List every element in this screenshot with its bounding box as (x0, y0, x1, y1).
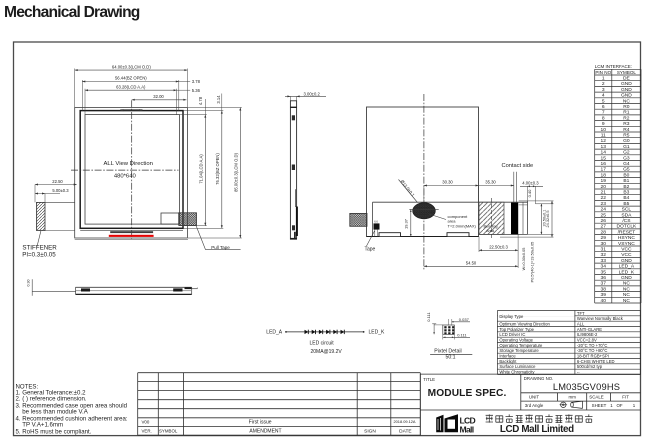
svg-text:36: 36 (601, 275, 607, 281)
svg-text:35.30: 35.30 (485, 180, 496, 185)
svg-text:W=0.30±0.05: W=0.30±0.05 (522, 248, 526, 271)
svg-text:30.30: 30.30 (442, 180, 453, 185)
svg-text:DATE: DATE (399, 428, 411, 434)
svg-text:32.00: 32.00 (153, 94, 164, 99)
svg-text:Ø13.0±0.1: Ø13.0±0.1 (400, 179, 416, 198)
svg-text:71.04(LCD A.A): 71.04(LCD A.A) (199, 154, 204, 184)
svg-text:PIN NO: PIN NO (595, 70, 611, 75)
svg-text:VER.: VER. (142, 428, 152, 433)
svg-text:ANTI-GLARE: ANTI-GLARE (577, 327, 602, 332)
svg-text:6: 6 (602, 104, 605, 110)
svg-text:Storage Temperature: Storage Temperature (499, 348, 539, 353)
svg-text:R0: R0 (623, 104, 630, 110)
svg-text:22.50±0.3: 22.50±0.3 (489, 245, 508, 250)
svg-text:SYMBOL: SYMBOL (159, 428, 178, 433)
svg-text:Optimum Viewing Direction: Optimum Viewing Direction (499, 322, 550, 327)
svg-text:1: 1 (602, 76, 605, 82)
svg-text:40: 40 (601, 298, 607, 304)
svg-text:27: 27 (601, 224, 607, 230)
svg-text:480*640: 480*640 (114, 174, 137, 180)
svg-text:12: 12 (601, 138, 607, 144)
svg-text:4.00±0.3: 4.00±0.3 (522, 181, 539, 186)
svg-text:39: 39 (601, 292, 607, 298)
svg-text:64.00±0.3(LCM O.D): 64.00±0.3(LCM O.D) (112, 64, 151, 69)
svg-text:VSYNC: VSYNC (618, 241, 635, 247)
svg-text:63.28(LCD A.A): 63.28(LCD A.A) (116, 84, 146, 89)
svg-text:VCC: VCC (621, 247, 632, 253)
svg-text:SDA: SDA (621, 212, 632, 218)
svg-text:20: 20 (601, 184, 607, 190)
svg-text:3.00±0.2: 3.00±0.2 (304, 91, 321, 96)
svg-text:1: 1 (633, 403, 636, 408)
svg-text:SCL: SCL (622, 207, 632, 213)
svg-text:Wanview Normally Black: Wanview Normally Black (577, 316, 624, 321)
svg-text:FIT: FIT (622, 395, 629, 400)
svg-text:Pixtel Detail: Pixtel Detail (434, 348, 461, 354)
svg-text:/CS: /CS (622, 218, 631, 224)
svg-text:G2: G2 (623, 150, 630, 156)
svg-text:21: 21 (601, 190, 607, 196)
svg-text:22.50: 22.50 (52, 179, 63, 184)
svg-text:B4: B4 (623, 195, 629, 201)
svg-text:ILI9806E-2: ILI9806E-2 (577, 332, 598, 337)
svg-text:9: 9 (602, 121, 605, 127)
svg-text:DE: DE (623, 76, 631, 82)
svg-text:37: 37 (601, 281, 607, 287)
svg-text:32: 32 (601, 252, 607, 258)
svg-text:500cd/m2 typ: 500cd/m2 typ (577, 364, 603, 369)
svg-text:B1: B1 (623, 178, 629, 184)
svg-text:29: 29 (601, 235, 607, 241)
svg-text:LED_K: LED_K (369, 330, 386, 336)
svg-text:G5: G5 (623, 167, 630, 173)
svg-text:mm: mm (569, 395, 577, 400)
svg-text:33: 33 (601, 258, 607, 264)
svg-text:B0: B0 (623, 172, 629, 178)
svg-text:AMENDMENT: AMENDMENT (249, 428, 281, 434)
svg-text:Tape: Tape (365, 246, 376, 252)
svg-text:G0: G0 (623, 138, 630, 144)
svg-text:19: 19 (601, 178, 607, 184)
svg-text:28: 28 (601, 229, 607, 235)
svg-text:0.111: 0.111 (457, 333, 467, 338)
svg-text:25: 25 (601, 212, 607, 218)
svg-text:R1: R1 (623, 110, 630, 116)
svg-text:85.00±0.3(LCM O.D): 85.00±0.3(LCM O.D) (234, 152, 239, 191)
svg-text:11: 11 (601, 133, 606, 139)
svg-text:Backlight: Backlight (499, 359, 517, 364)
svg-text:SHEET: SHEET (592, 403, 607, 408)
svg-text:R4: R4 (623, 127, 630, 133)
svg-text:19.37: 19.37 (403, 218, 408, 229)
svg-text:0.037: 0.037 (459, 317, 470, 322)
svg-text:14: 14 (601, 150, 607, 156)
svg-text:15: 15 (601, 155, 607, 161)
svg-text:22: 22 (601, 195, 607, 201)
svg-text:SYMBOL: SYMBOL (617, 70, 637, 75)
svg-text:0.40: 0.40 (527, 189, 532, 198)
svg-text:TITLE: TITLE (423, 377, 435, 382)
svg-text:Area: Area (486, 229, 495, 233)
svg-text:LED_A: LED_A (619, 264, 635, 270)
svg-text:LCD Mall Limited: LCD Mall Limited (500, 424, 574, 435)
svg-text:B5: B5 (623, 201, 629, 207)
svg-text:MODULE SPEC.: MODULE SPEC. (428, 388, 507, 399)
svg-text:Interface: Interface (499, 354, 516, 359)
svg-text:G3: G3 (623, 155, 630, 161)
svg-text:18: 18 (601, 172, 607, 178)
svg-text:20MA@19.2V: 20MA@19.2V (311, 349, 343, 355)
svg-text:ALL: ALL (577, 322, 585, 327)
svg-text:NC: NC (623, 286, 631, 292)
svg-text:56.44(BZ OPEN): 56.44(BZ OPEN) (115, 76, 147, 81)
svg-text:Contact side: Contact side (502, 163, 534, 169)
svg-text:NC: NC (623, 292, 631, 298)
svg-text:ALL View Direction: ALL View Direction (103, 161, 152, 167)
svg-text:/RESET: /RESET (618, 229, 636, 235)
svg-text:4: 4 (602, 93, 605, 99)
svg-text:HSYNC: HSYNC (618, 235, 636, 241)
svg-text:Display Type: Display Type (499, 314, 524, 319)
svg-text:R5: R5 (623, 133, 630, 139)
svg-text:3rd Angle: 3rd Angle (525, 403, 544, 408)
svg-text:5. RoHS must be compliant.: 5. RoHS must be compliant. (16, 428, 92, 435)
svg-text:23: 23 (601, 201, 607, 207)
svg-text:26: 26 (601, 218, 607, 224)
svg-text:DOTCLK: DOTCLK (616, 224, 637, 230)
svg-text:B2: B2 (623, 184, 629, 190)
svg-text:Top Polarizer Type: Top Polarizer Type (499, 327, 534, 332)
svg-text:PI=0.3±0.05: PI=0.3±0.05 (22, 252, 56, 259)
svg-text:NC: NC (623, 298, 631, 304)
svg-text:GND: GND (621, 275, 632, 281)
svg-text:GND: GND (621, 87, 632, 93)
svg-text:0.111: 0.111 (426, 312, 431, 322)
svg-text:17: 17 (601, 167, 607, 173)
svg-text:G4: G4 (623, 161, 630, 167)
svg-text:6.6: 6.6 (374, 219, 378, 223)
svg-text:54.50: 54.50 (466, 261, 477, 266)
svg-text:34: 34 (601, 264, 607, 270)
svg-text:LCD Driver IC: LCD Driver IC (499, 332, 525, 337)
svg-text:LED_A: LED_A (266, 330, 283, 336)
svg-text:-20°C TO +70°C: -20°C TO +70°C (577, 343, 608, 348)
svg-text:18-BIT RGB+SPI: 18-BIT RGB+SPI (577, 354, 609, 359)
svg-text:LED_K: LED_K (619, 269, 635, 275)
svg-text:76.32(BZ OPEN): 76.32(BZ OPEN) (215, 153, 220, 185)
svg-text:24.32±0.5: 24.32±0.5 (546, 211, 550, 228)
svg-text:2: 2 (602, 81, 605, 87)
svg-text:be less than module V.A: be less than module V.A (16, 408, 89, 415)
svg-text:STIFFENER: STIFFENER (22, 245, 57, 252)
svg-text:Mechanical Drawing: Mechanical Drawing (4, 4, 140, 21)
svg-text:38: 38 (601, 286, 607, 292)
svg-text:35: 35 (601, 269, 607, 275)
svg-text:VCC: VCC (621, 252, 632, 258)
svg-text:TFT: TFT (577, 311, 585, 316)
svg-text:Operating Temperature: Operating Temperature (499, 343, 543, 348)
svg-text:R2: R2 (623, 115, 630, 121)
svg-text:5.00±0.3: 5.00±0.3 (52, 188, 69, 193)
svg-text:R3: R3 (623, 121, 630, 127)
svg-text:SCALE: SCALE (589, 395, 603, 400)
svg-text:30: 30 (601, 241, 607, 247)
svg-text:Pull Tape: Pull Tape (211, 245, 230, 250)
svg-text:Surface Luminance: Surface Luminance (499, 364, 536, 369)
svg-text:24: 24 (601, 207, 607, 213)
svg-text:P0.5*(40-1)=19.50±0.05: P0.5*(40-1)=19.50±0.05 (531, 242, 535, 283)
svg-text:First issue: First issue (249, 419, 272, 425)
svg-text:G1: G1 (623, 144, 630, 150)
svg-text:GND: GND (621, 258, 632, 264)
svg-text:8: 8 (602, 115, 605, 121)
svg-text:Mall: Mall (460, 424, 474, 434)
svg-text:50:1: 50:1 (445, 355, 455, 361)
svg-text:LED circuit: LED circuit (310, 341, 335, 347)
svg-text:3.78: 3.78 (192, 79, 201, 84)
svg-text:13: 13 (601, 144, 607, 150)
svg-text:OF: OF (616, 403, 622, 408)
svg-text:VCC=2.8V: VCC=2.8V (577, 338, 597, 343)
svg-text:GND: GND (621, 81, 632, 87)
svg-text:LM035GV09HS: LM035GV09HS (553, 382, 620, 392)
svg-text:NC: NC (623, 98, 631, 104)
svg-text:31: 31 (601, 247, 607, 253)
svg-text:LCM INTERFACE:: LCM INTERFACE: (595, 64, 632, 69)
svg-text:16: 16 (601, 161, 607, 167)
svg-text:3: 3 (602, 87, 605, 93)
svg-text:0.30: 0.30 (26, 280, 30, 287)
svg-text:NC: NC (623, 281, 631, 287)
svg-text:Operating Voltage: Operating Voltage (499, 338, 533, 343)
svg-text:2018.09.12A: 2018.09.12A (393, 419, 415, 424)
svg-text:1: 1 (610, 403, 613, 408)
svg-text:7: 7 (602, 110, 605, 116)
svg-text:6-CHIS WHITE LED: 6-CHIS WHITE LED (577, 359, 615, 364)
svg-text:5.36: 5.36 (192, 88, 201, 93)
svg-text:T=2.0mm(MAX): T=2.0mm(MAX) (448, 223, 477, 228)
svg-text:-30°C TO +80°C: -30°C TO +80°C (577, 348, 608, 353)
svg-text:5: 5 (602, 98, 605, 104)
svg-text:SIGN: SIGN (364, 428, 376, 434)
svg-text:DRAWING NO.: DRAWING NO. (524, 376, 553, 381)
svg-text:V00: V00 (142, 419, 150, 424)
svg-text:3.14: 3.14 (216, 95, 221, 104)
svg-text:10: 10 (601, 127, 607, 133)
svg-text:4.78: 4.78 (198, 96, 203, 105)
svg-text:UNIT: UNIT (529, 395, 540, 400)
svg-text:B3: B3 (623, 190, 629, 196)
svg-text:GND: GND (621, 93, 632, 99)
